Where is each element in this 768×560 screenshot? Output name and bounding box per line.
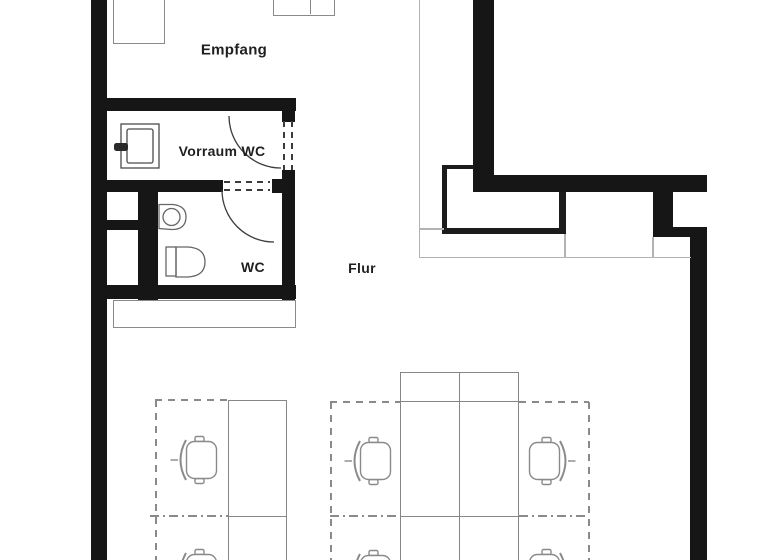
toilet-icon [166,247,205,277]
office-chair-icon [171,437,217,484]
floor-plan: Empfang Vorraum WC WC Flur [0,0,768,560]
room-label-empfang: Empfang [201,42,267,59]
fixtures-layer [0,0,768,560]
washbasin-icon [159,205,186,230]
door-swing-arc-icon [229,116,281,168]
office-chair-icon [171,550,217,560]
sink-cabinet-icon [114,124,159,168]
office-chair-icon [530,438,576,485]
office-chair-icon [345,551,391,560]
office-chair-icon [345,438,391,485]
door-swing-arc-icon [222,190,274,242]
room-label-vorraum-wc: Vorraum WC [179,143,266,159]
room-label-flur: Flur [348,260,376,276]
room-label-wc: WC [241,259,265,275]
office-chair-icon [530,550,576,560]
